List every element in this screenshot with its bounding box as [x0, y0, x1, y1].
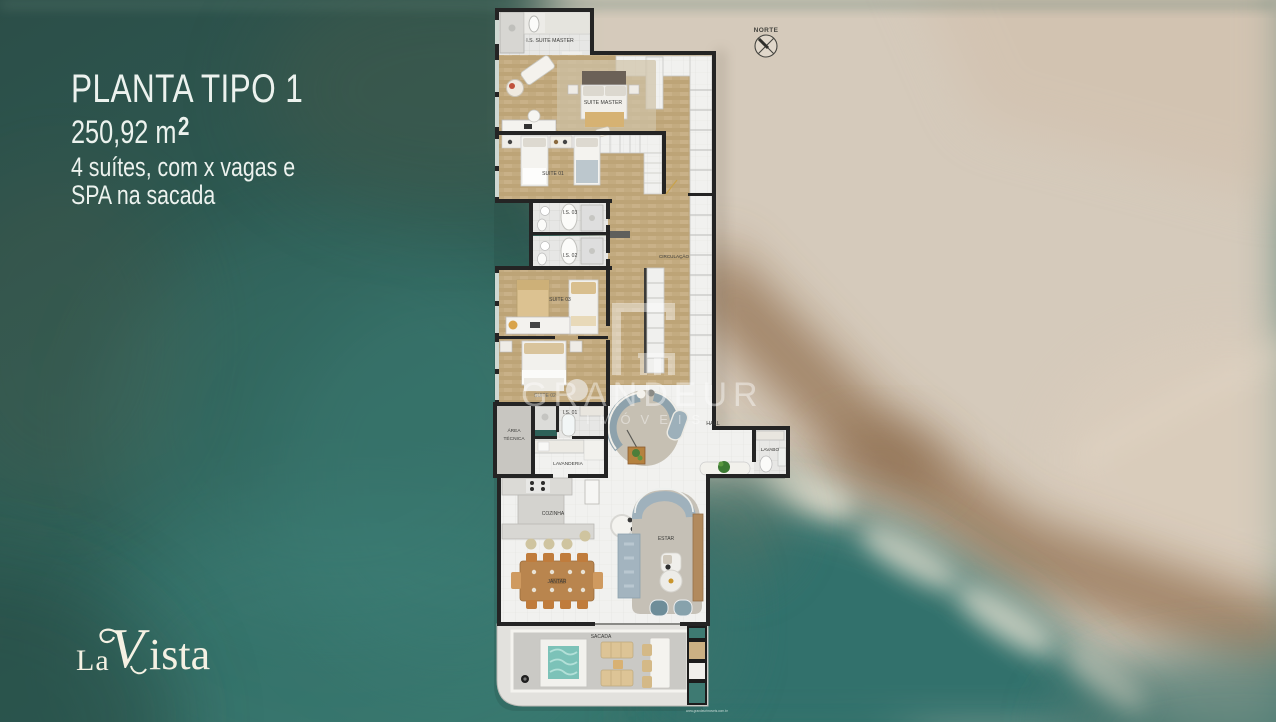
- svg-text:TÉCNICA: TÉCNICA: [503, 435, 525, 442]
- svg-text:NORTE: NORTE: [754, 27, 779, 34]
- svg-text:I.S. 03: I.S. 03: [563, 210, 578, 216]
- svg-text:www.grandeurimoveis.com.br: www.grandeurimoveis.com.br: [686, 709, 729, 713]
- svg-text:I.S. SUITE MASTER: I.S. SUITE MASTER: [526, 38, 574, 44]
- svg-text:IMÓVEIS: IMÓVEIS: [586, 412, 710, 427]
- svg-text:ESTAR: ESTAR: [658, 536, 675, 542]
- svg-text:I.S. 02: I.S. 02: [563, 253, 578, 259]
- svg-text:LAVABO: LAVABO: [761, 447, 780, 453]
- svg-text:GRANDEUR: GRANDEUR: [521, 376, 764, 414]
- svg-text:ÁREA: ÁREA: [507, 427, 521, 434]
- svg-text:LAVANDERIA: LAVANDERIA: [553, 461, 583, 467]
- svg-text:SACADA: SACADA: [591, 634, 612, 640]
- svg-text:SUITE 03: SUITE 03: [549, 297, 571, 303]
- svg-text:SUITE 01: SUITE 01: [542, 171, 564, 177]
- svg-text:JANTAR: JANTAR: [547, 579, 566, 585]
- svg-text:SUITE MASTER: SUITE MASTER: [584, 100, 623, 106]
- svg-text:COZINHA: COZINHA: [542, 511, 565, 517]
- svg-text:CIRCULAÇÃO: CIRCULAÇÃO: [659, 253, 690, 259]
